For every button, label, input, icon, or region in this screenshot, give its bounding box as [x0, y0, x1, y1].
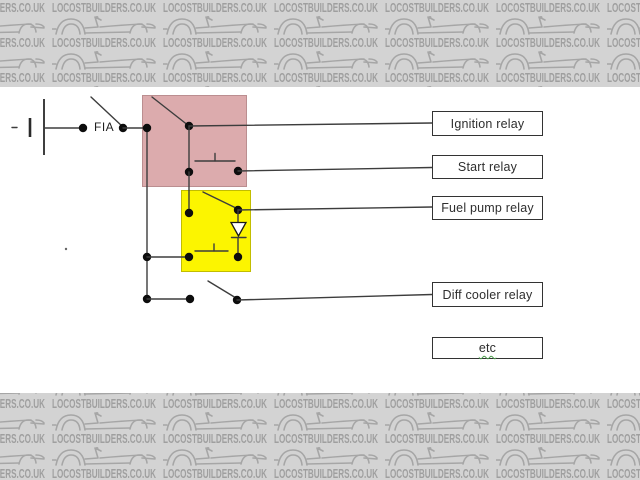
ignition-start-relay-highlight: [142, 95, 247, 187]
ignition-relay-box: Ignition relay: [432, 111, 543, 136]
watermarked-wiring-diagram: LOCOSTBUILDERS.CO.UK: [0, 0, 640, 480]
start-relay-label: Start relay: [458, 160, 517, 174]
etc-label: etc: [479, 341, 496, 355]
watermark-tiles: [0, 0, 640, 87]
etc-box: etc: [432, 337, 543, 359]
fuel-pump-relay-label: Fuel pump relay: [441, 201, 534, 215]
watermark-tiles: [0, 393, 640, 480]
ignition-relay-label: Ignition relay: [451, 117, 525, 131]
fuel-pump-relay-highlight: [181, 190, 251, 272]
watermark-band-top: LOCOSTBUILDERS.CO.UK: [0, 0, 640, 87]
diff-cooler-relay-label: Diff cooler relay: [442, 288, 532, 302]
fia-switch-label: FIA: [94, 120, 114, 134]
start-relay-box: Start relay: [432, 155, 543, 179]
watermark-band-bottom: LOCOSTBUILDERS.CO.UK: [0, 393, 640, 480]
diff-cooler-relay-box: Diff cooler relay: [432, 282, 543, 307]
fuel-pump-relay-box: Fuel pump relay: [432, 196, 543, 220]
